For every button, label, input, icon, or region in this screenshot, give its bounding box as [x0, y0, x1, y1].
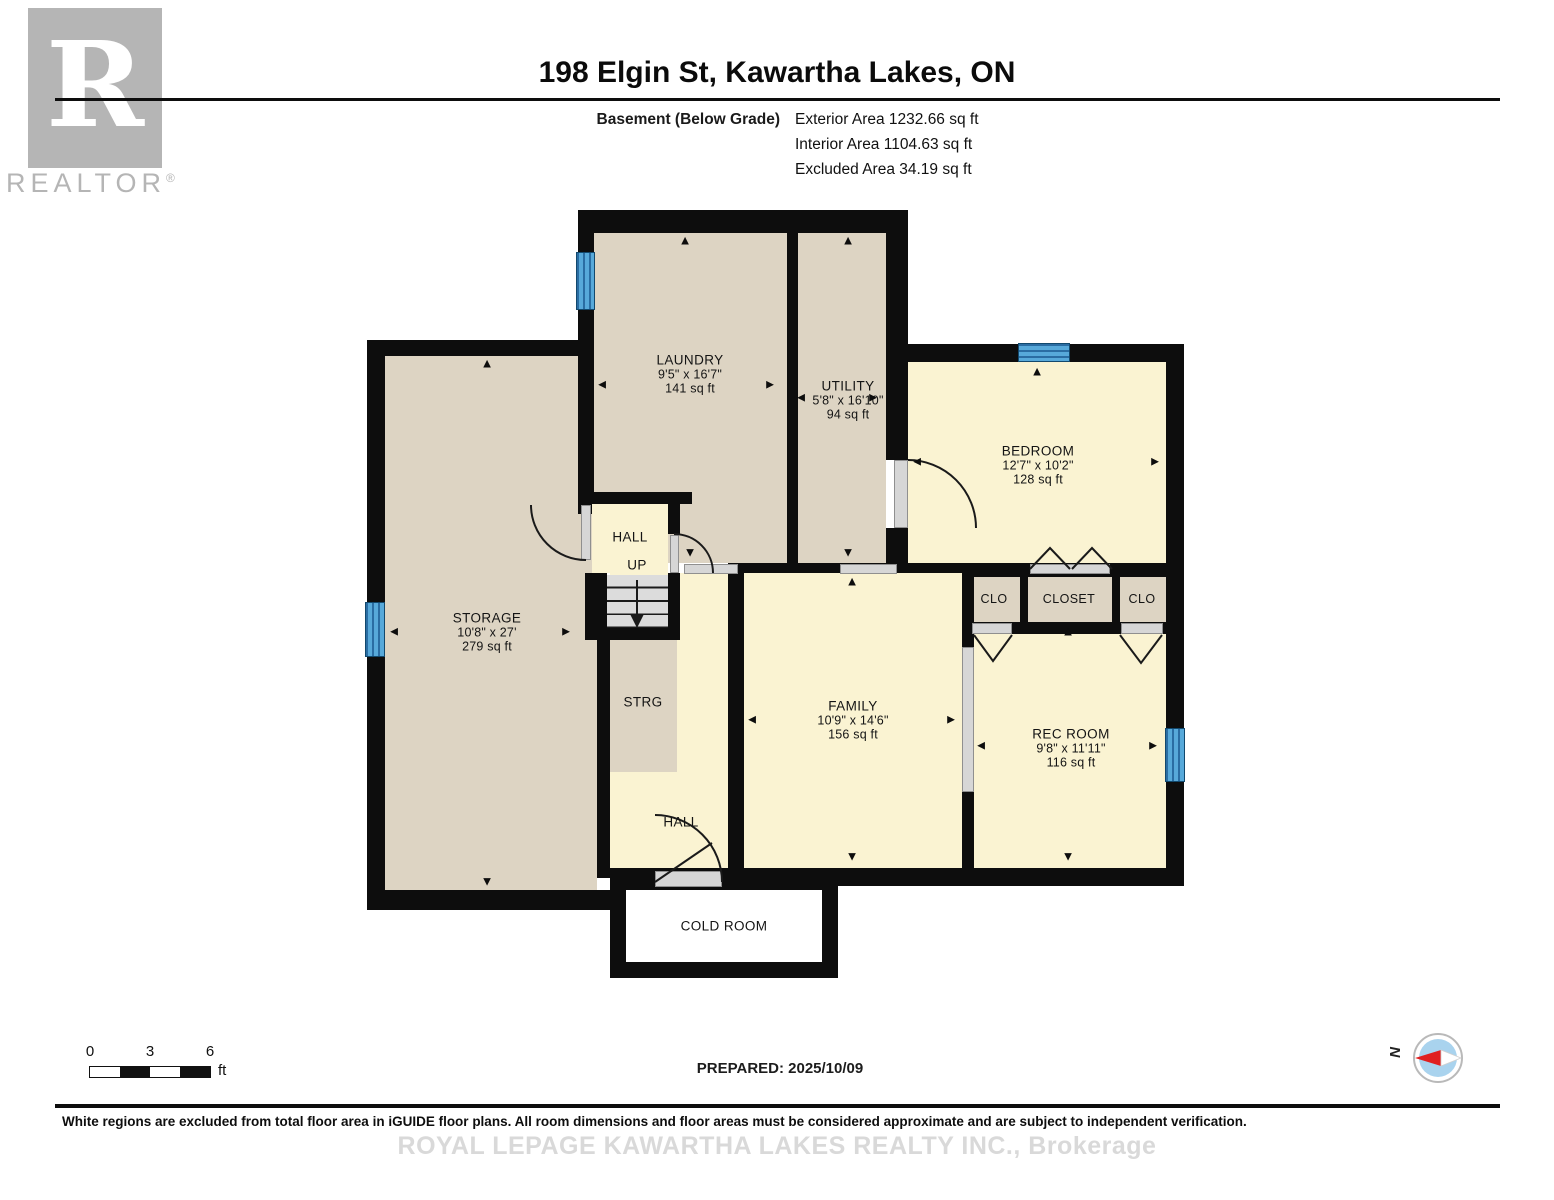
realtor-logo-word: REALTOR®: [6, 168, 196, 199]
dim-arrow-left-icon: ◄: [975, 739, 988, 752]
dim-arrow-down-icon: ▼: [684, 546, 697, 559]
brokerage-watermark: ROYAL LEPAGE KAWARTHA LAKES REALTY INC.,…: [0, 1132, 1554, 1161]
scale-tick-3: 3: [146, 1043, 154, 1060]
dim-arrow-down-icon: ▼: [481, 875, 494, 888]
disclaimer-text: White regions are excluded from total fl…: [62, 1114, 1462, 1129]
clo-left-label: CLO: [981, 592, 1008, 606]
dim-arrow-left-icon: ◄: [911, 455, 924, 468]
scale-tick-6: 6: [206, 1043, 214, 1060]
dim-arrow-left-icon: ◄: [596, 378, 609, 391]
bedroom-label: BEDROOM 12'7" x 10'2" 128 sq ft: [1002, 444, 1075, 487]
wall: [578, 492, 692, 504]
laundry-label: LAUNDRY 9'5" x 16'7" 141 sq ft: [656, 353, 723, 396]
wall: [367, 655, 385, 910]
hall-laundry-door: [670, 535, 679, 573]
floor-label: Basement (Below Grade): [380, 111, 780, 129]
wall: [728, 868, 975, 886]
dim-arrow-right-icon: ►: [560, 625, 573, 638]
dim-arrow-left-icon: ◄: [388, 625, 401, 638]
storage-label: STORAGE 10'8" x 27' 279 sq ft: [453, 611, 522, 654]
registered-mark: ®: [166, 171, 180, 185]
dim-arrow-down-icon: ▼: [1062, 850, 1075, 863]
scale-unit: ft: [218, 1062, 226, 1079]
wall: [668, 504, 680, 534]
dim-arrow-left-icon: ◄: [795, 391, 808, 404]
dim-arrow-up-icon: ▲: [1031, 365, 1044, 378]
clo-right-label: CLO: [1129, 592, 1156, 606]
dim-arrow-right-icon: ►: [867, 391, 880, 404]
wall: [1166, 344, 1184, 728]
wall: [578, 308, 594, 492]
compass-north-label: N: [1387, 1047, 1404, 1058]
wall: [962, 792, 974, 868]
scale-bar: [89, 1066, 211, 1078]
wall: [367, 340, 594, 356]
header-divider: [55, 98, 1500, 101]
footer-divider: [55, 1104, 1500, 1108]
excluded-area: Excluded Area 34.19 sq ft: [795, 161, 972, 179]
hall-opening-sill: [684, 564, 738, 574]
closet-door-sill: [1030, 564, 1110, 574]
dim-arrow-up-icon: ▲: [1062, 625, 1075, 638]
utility-opening-sill: [840, 564, 897, 574]
window-laundry-icon: [576, 252, 595, 310]
hall-upper-label: HALL: [612, 530, 647, 545]
dim-arrow-right-icon: ►: [1147, 739, 1160, 752]
window-rec-room-icon: [1165, 728, 1185, 782]
wall: [578, 210, 594, 256]
hall-lower-label: HALL: [663, 815, 698, 830]
rec-room-label: REC ROOM 9'8" x 11'11" 116 sq ft: [1032, 727, 1109, 770]
wall: [1112, 577, 1120, 622]
dim-arrow-up-icon: ▲: [679, 234, 692, 247]
family-rec-half-wall: [962, 647, 974, 792]
wall: [367, 340, 385, 602]
prepared-date: PREPARED: 2025/10/09: [660, 1060, 900, 1077]
family-label: FAMILY 10'9" x 14'6" 156 sq ft: [817, 699, 888, 742]
dim-arrow-down-icon: ▼: [842, 546, 855, 559]
dim-arrow-up-icon: ▲: [481, 357, 494, 370]
interior-area: Interior Area 1104.63 sq ft: [795, 136, 972, 154]
compass-icon: [1408, 1028, 1468, 1088]
cold-room-label: COLD ROOM: [681, 919, 768, 934]
dim-arrow-up-icon: ▲: [842, 234, 855, 247]
wall: [962, 868, 1184, 886]
cold-room-door: [655, 871, 722, 887]
window-storage-icon: [365, 602, 385, 657]
dim-arrow-down-icon: ▼: [846, 850, 859, 863]
wall: [578, 210, 908, 233]
window-bedroom-icon: [1018, 343, 1070, 362]
strg-label: STRG: [623, 695, 662, 710]
wall: [1020, 577, 1028, 622]
dim-arrow-right-icon: ►: [764, 378, 777, 391]
clo-left-door-sill: [972, 623, 1012, 634]
dim-arrow-right-icon: ►: [945, 713, 958, 726]
wall: [597, 628, 680, 640]
bedroom-door: [894, 460, 908, 528]
exterior-area: Exterior Area 1232.66 sq ft: [795, 111, 979, 129]
scale-tick-0: 0: [86, 1043, 94, 1060]
wall: [962, 573, 974, 647]
wall: [597, 640, 610, 878]
hall-storage-door: [581, 505, 591, 560]
dim-arrow-left-icon: ◄: [746, 713, 759, 726]
clo-right-door-sill: [1121, 623, 1163, 634]
wall: [728, 563, 744, 890]
dim-arrow-up-icon: ▲: [846, 575, 859, 588]
stairs: [607, 575, 668, 628]
closet-label: CLOSET: [1043, 592, 1095, 606]
page-title: 198 Elgin St, Kawartha Lakes, ON: [0, 56, 1554, 90]
floor-plan-page: R REALTOR® 198 Elgin St, Kawartha Lakes,…: [0, 0, 1554, 1200]
dim-arrow-right-icon: ►: [1149, 455, 1162, 468]
wall: [367, 890, 610, 910]
hall-up-label: UP: [627, 558, 647, 573]
